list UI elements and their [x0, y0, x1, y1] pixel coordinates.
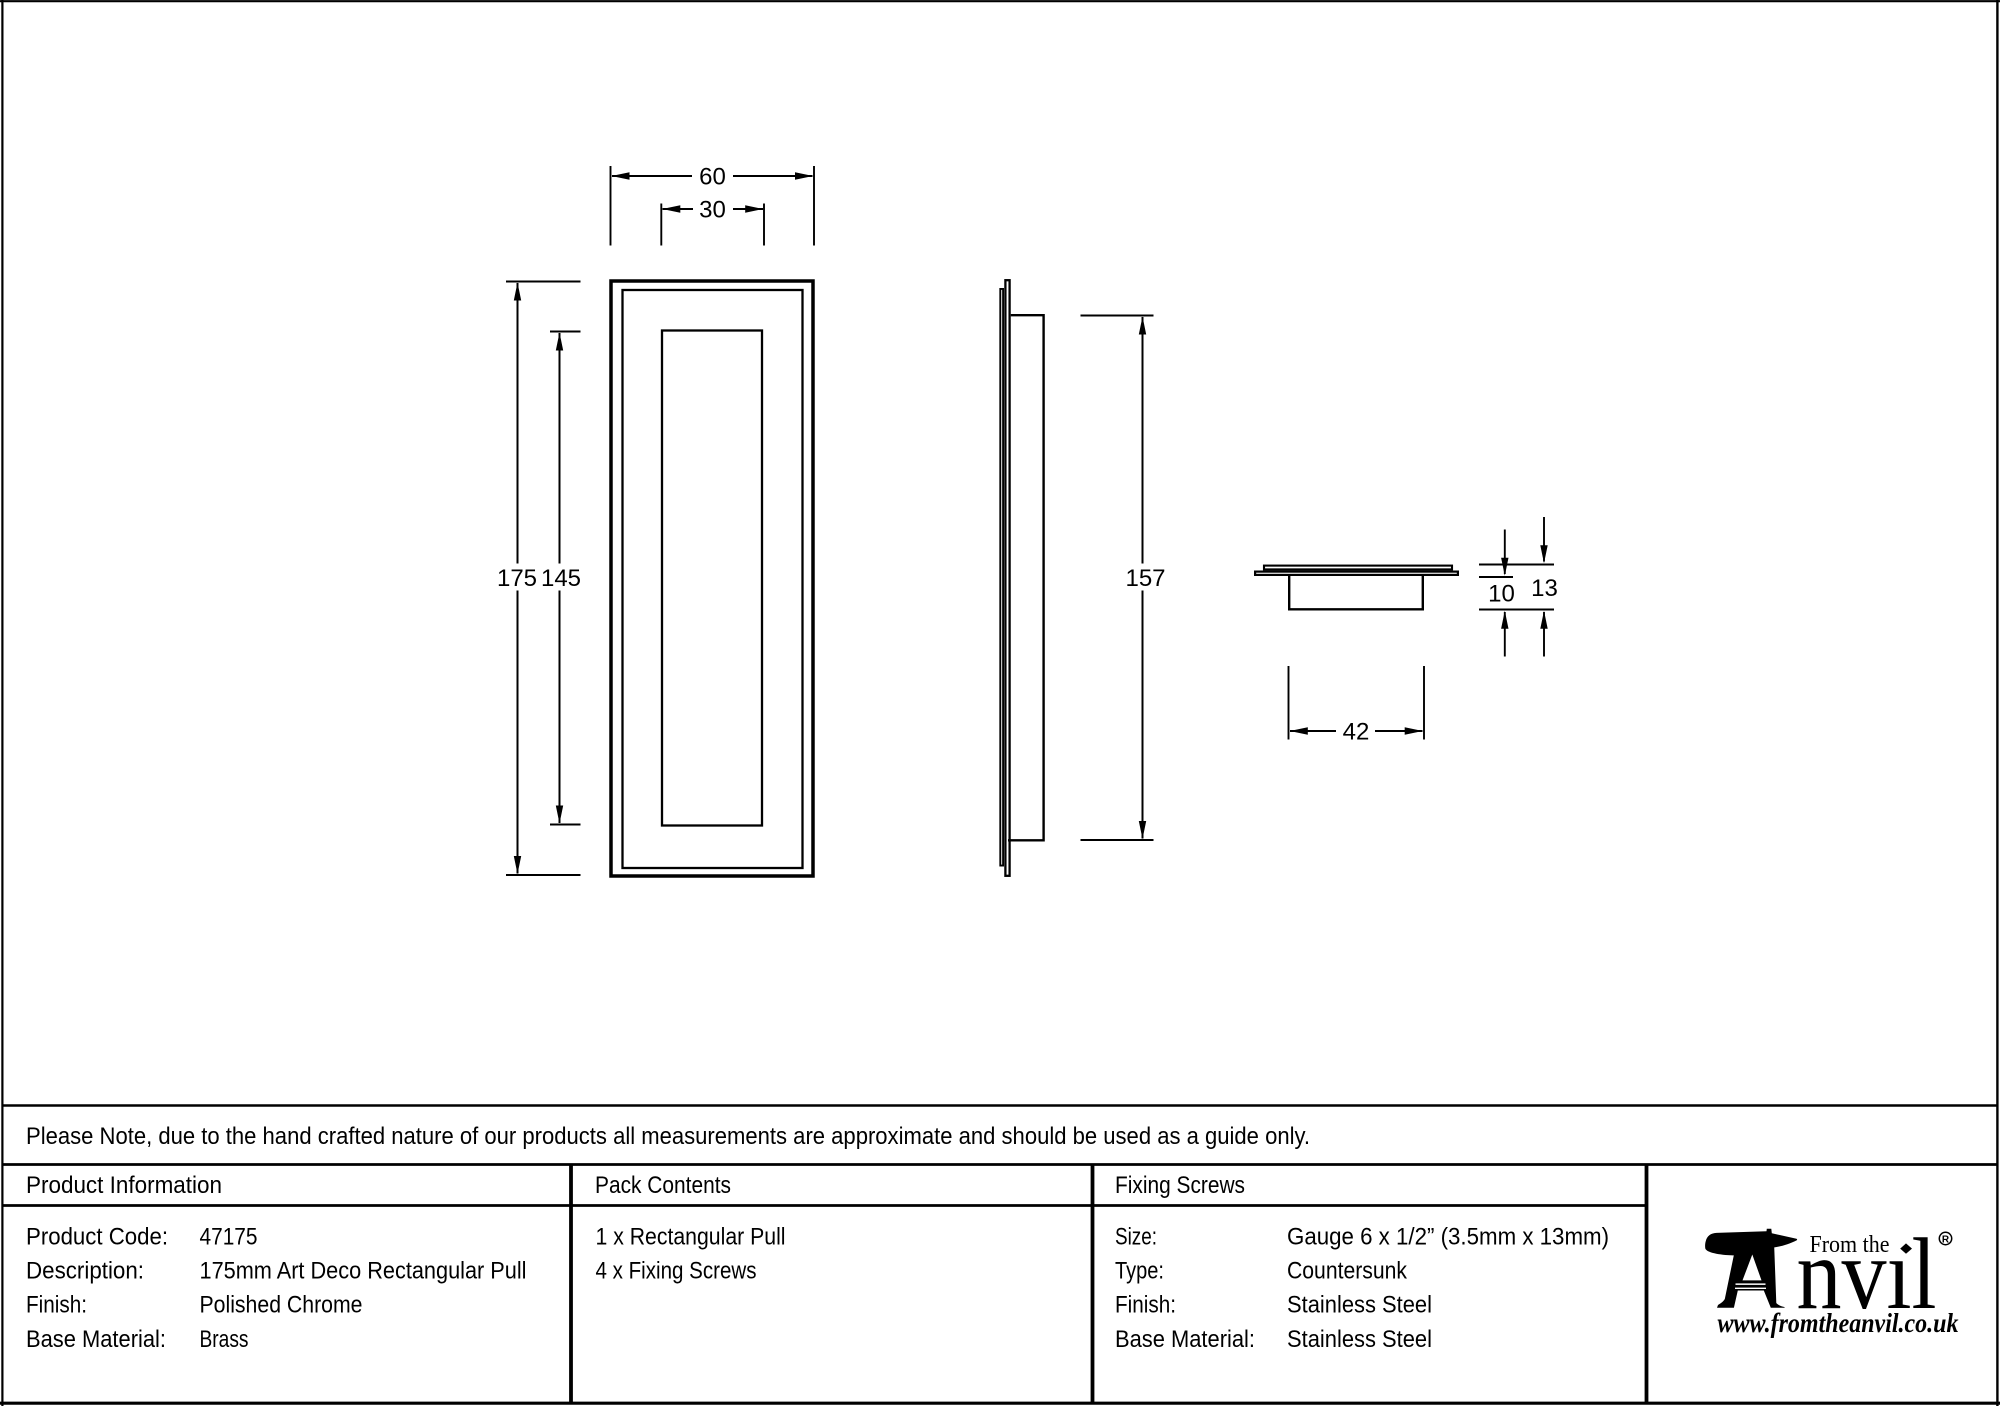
svg-text:42: 42 [1343, 719, 1370, 746]
svg-text:47175: 47175 [200, 1224, 258, 1251]
svg-text:30: 30 [699, 197, 726, 224]
svg-text:Gauge 6 x 1/2” (3.5mm x 13mm): Gauge 6 x 1/2” (3.5mm x 13mm) [1287, 1224, 1609, 1251]
svg-text:1 x Rectangular Pull: 1 x Rectangular Pull [596, 1224, 786, 1251]
svg-text:Stainless Steel: Stainless Steel [1287, 1326, 1432, 1353]
svg-text:Fixing Screws: Fixing Screws [1115, 1172, 1245, 1199]
svg-text:Base Material:: Base Material: [26, 1326, 166, 1353]
svg-text:Type:: Type: [1115, 1258, 1164, 1285]
svg-text:60: 60 [699, 164, 726, 191]
svg-text:From the: From the [1810, 1232, 1890, 1258]
svg-text:10: 10 [1488, 581, 1515, 608]
svg-text:Product Code:: Product Code: [26, 1224, 168, 1251]
svg-text:13: 13 [1531, 575, 1558, 602]
svg-text:Brass: Brass [200, 1326, 249, 1353]
svg-text:Polished Chrome: Polished Chrome [200, 1292, 363, 1319]
svg-text:Stainless Steel: Stainless Steel [1287, 1292, 1432, 1319]
svg-text:Product Information: Product Information [26, 1172, 222, 1199]
svg-text:Please Note, due to the hand c: Please Note, due to the hand crafted nat… [26, 1123, 1310, 1150]
svg-text:Finish:: Finish: [1115, 1292, 1176, 1319]
svg-text:Description:: Description: [26, 1258, 144, 1285]
svg-text:175mm Art Deco Rectangular Pul: 175mm Art Deco Rectangular Pull [200, 1258, 527, 1285]
svg-text:Countersunk: Countersunk [1287, 1258, 1408, 1285]
svg-text:Pack Contents: Pack Contents [595, 1172, 731, 1199]
svg-text:175: 175 [497, 565, 537, 592]
svg-text:157: 157 [1125, 565, 1165, 592]
svg-text:www.fromtheanvil.co.uk: www.fromtheanvil.co.uk [1718, 1308, 1959, 1338]
svg-text:Size:: Size: [1115, 1224, 1157, 1251]
svg-text:4 x Fixing Screws: 4 x Fixing Screws [596, 1258, 757, 1285]
svg-text:145: 145 [541, 565, 581, 592]
svg-text:Finish:: Finish: [26, 1292, 87, 1319]
svg-text:R: R [1942, 1234, 1950, 1245]
svg-text:Base Material:: Base Material: [1115, 1326, 1255, 1353]
